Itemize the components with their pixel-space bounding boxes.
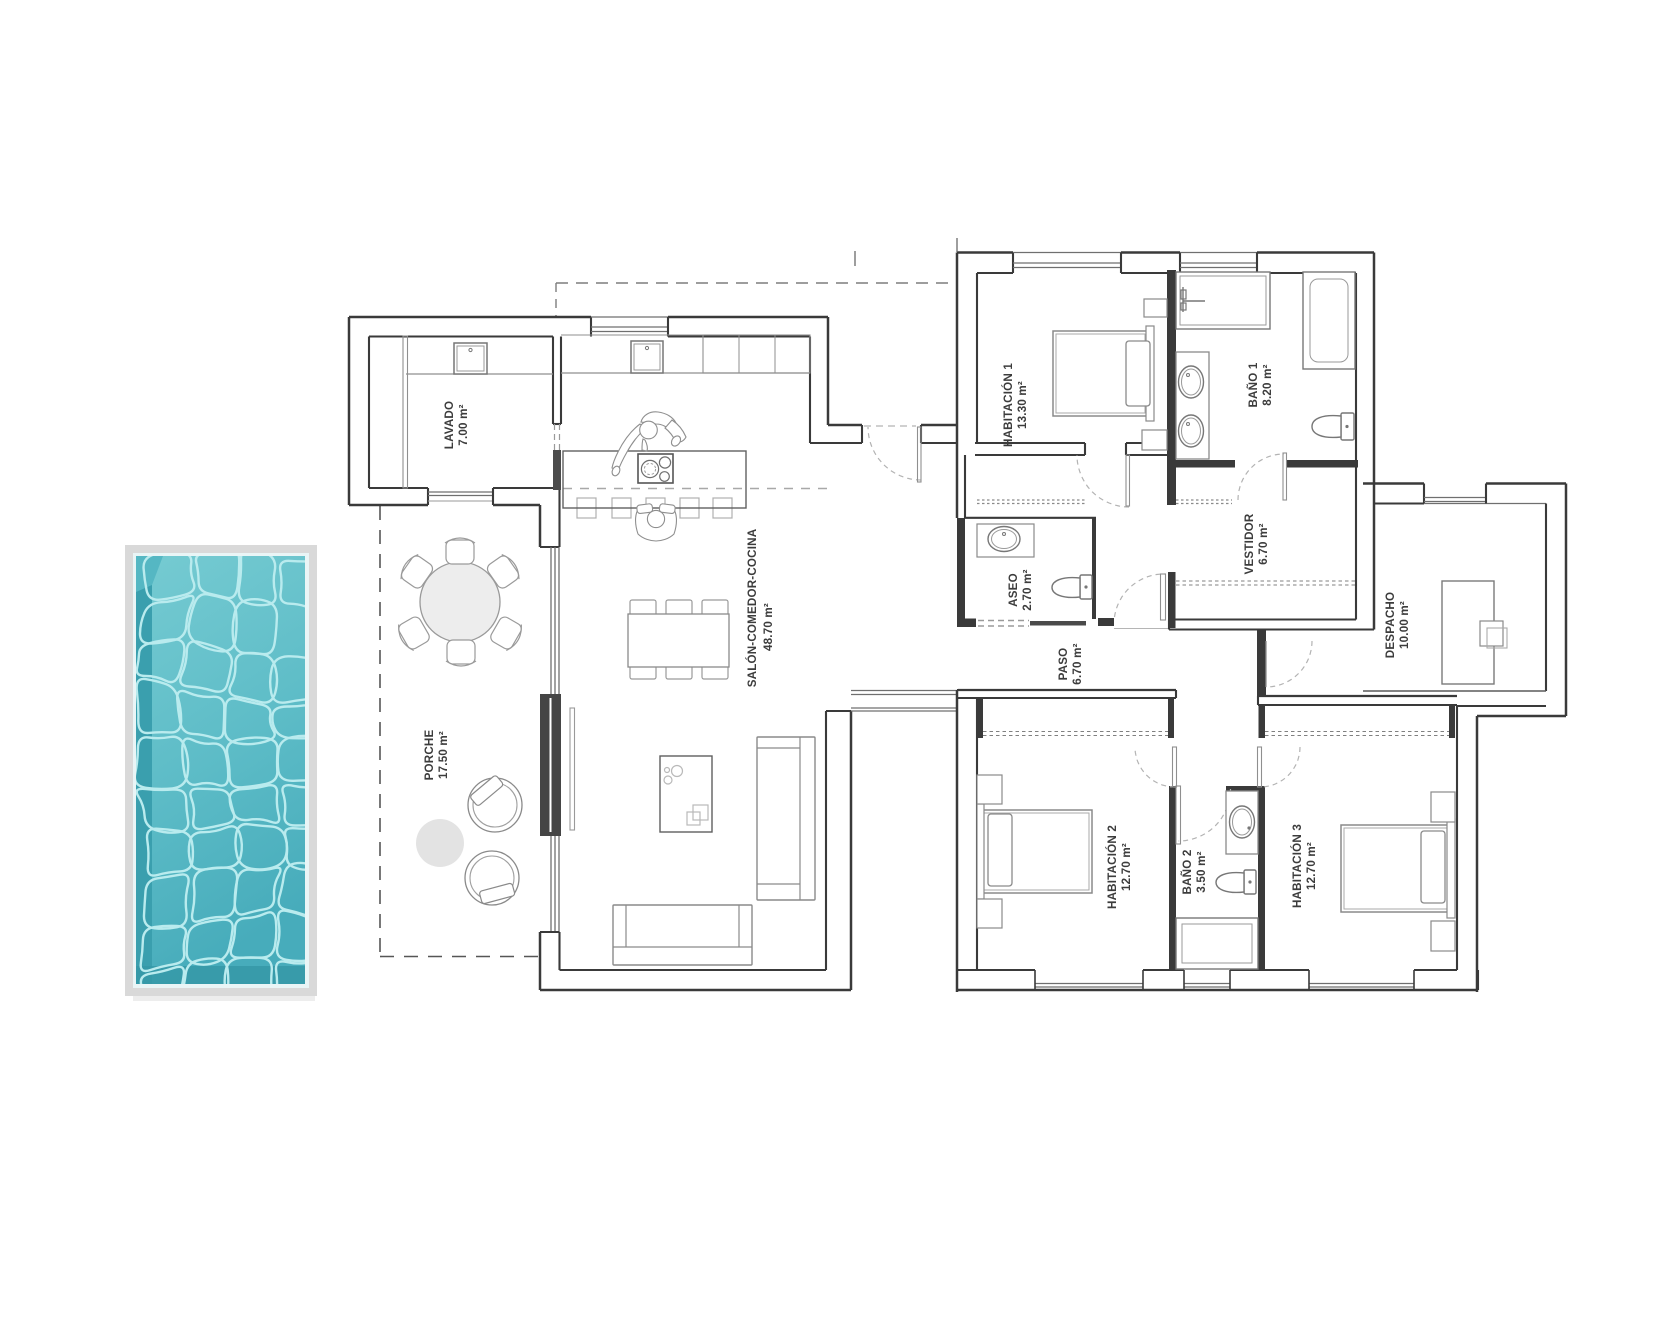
svg-text:LAVADO: LAVADO	[443, 401, 456, 449]
svg-text:BAÑO 2: BAÑO 2	[1181, 849, 1194, 894]
svg-text:17.50 m²: 17.50 m²	[437, 731, 450, 779]
svg-text:13.30 m²: 13.30 m²	[1016, 381, 1029, 429]
svg-text:DESPACHO: DESPACHO	[1384, 592, 1397, 658]
svg-text:HABITACIÓN 1: HABITACIÓN 1	[1002, 363, 1015, 447]
svg-text:12.70 m²: 12.70 m²	[1305, 842, 1318, 890]
svg-text:HABITACIÓN 2: HABITACIÓN 2	[1106, 825, 1119, 909]
svg-text:6.70 m²: 6.70 m²	[1071, 643, 1084, 684]
svg-text:HABITACIÓN 3: HABITACIÓN 3	[1291, 824, 1304, 908]
svg-text:BAÑO 1: BAÑO 1	[1247, 362, 1260, 407]
svg-text:ASEO: ASEO	[1007, 573, 1020, 607]
svg-text:SALÓN-COMEDOR-COCINA: SALÓN-COMEDOR-COCINA	[746, 528, 759, 687]
svg-text:2.70 m²: 2.70 m²	[1021, 569, 1034, 610]
svg-text:3.50 m²: 3.50 m²	[1195, 851, 1208, 892]
svg-text:6.70 m²: 6.70 m²	[1257, 523, 1270, 564]
svg-text:48.70 m²: 48.70 m²	[762, 603, 775, 651]
svg-text:7.00 m²: 7.00 m²	[457, 404, 470, 445]
svg-text:10.00 m²: 10.00 m²	[1398, 601, 1411, 649]
svg-text:8.20 m²: 8.20 m²	[1261, 364, 1274, 405]
svg-text:PORCHE: PORCHE	[423, 730, 436, 781]
svg-text:PASO: PASO	[1057, 648, 1070, 681]
svg-text:12.70 m²: 12.70 m²	[1120, 843, 1133, 891]
svg-text:VESTIDOR: VESTIDOR	[1243, 513, 1256, 574]
